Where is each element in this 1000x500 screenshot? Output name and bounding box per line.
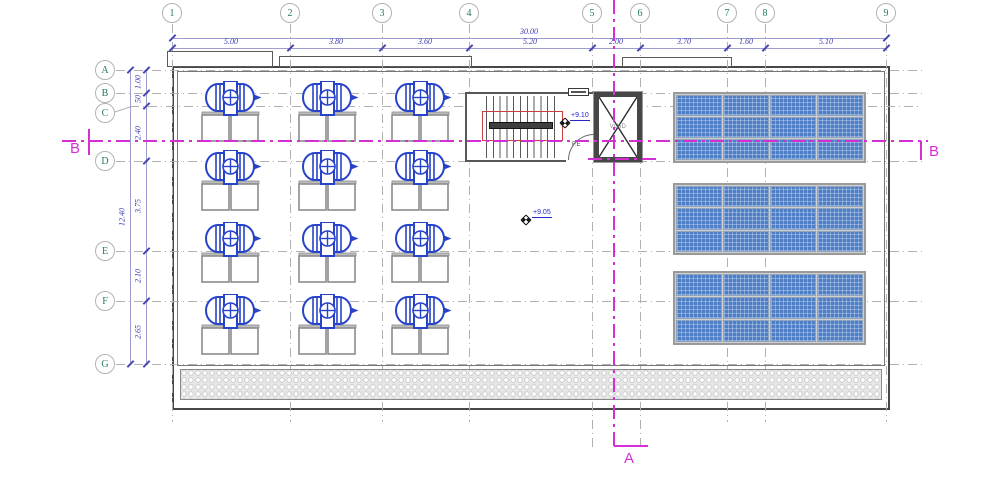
grid-bubble-row-d: D: [95, 151, 115, 171]
section-label-a: A: [624, 450, 634, 467]
solar-panel-cell: [817, 117, 863, 138]
grid-bubble-col-7: 7: [717, 3, 737, 23]
grid-bubble-row-f: F: [95, 291, 115, 311]
solar-panel-cell: [676, 208, 722, 229]
level-annotation-roof: +9.05: [532, 209, 552, 218]
solar-panel-cell: [770, 208, 816, 229]
water-tank-unit: [389, 150, 453, 212]
solar-panel-cell: [676, 320, 722, 342]
solar-panel-cell: [770, 186, 816, 207]
grid-bubble-row-b: B: [95, 83, 115, 103]
solar-array: [673, 183, 866, 255]
section-line-b-end-left: [88, 129, 90, 155]
grid-bubble-col-2: 2: [280, 3, 300, 23]
solar-panel-cell: [723, 231, 769, 252]
grid-line-horizontal-g: [116, 364, 922, 365]
solar-panel-cell: [676, 95, 722, 116]
dimension-value: 5.10: [819, 37, 833, 46]
grid-bubble-col-8: 8: [755, 3, 775, 23]
dimension-value: 5.20: [523, 37, 537, 46]
solar-panel-cell: [723, 320, 769, 342]
solar-panel-cell: [817, 320, 863, 342]
water-tank-unit: [199, 150, 263, 212]
parapet-tab: [622, 57, 732, 67]
grid-bubble-row-g: G: [95, 354, 115, 374]
solar-panel-cell: [723, 139, 769, 160]
section-line-a-elbow: [614, 445, 648, 447]
solar-panel-cell: [770, 139, 816, 160]
roof-hatch: [568, 88, 589, 96]
solar-panel-cell: [817, 139, 863, 160]
dimension-value: 3.80: [329, 37, 343, 46]
grid-bubble-col-9: 9: [876, 3, 896, 23]
level-annotation-stair: +9.10: [570, 112, 590, 121]
dimension-line-v-total: 12.40: [130, 70, 131, 364]
dimension-value: 50: [134, 95, 143, 103]
solar-panel-cell: [676, 231, 722, 252]
parapet-tab: [167, 51, 273, 67]
solar-panel-cell: [770, 117, 816, 138]
solar-panel-cell: [676, 117, 722, 138]
grid-bubble-row-e: E: [95, 241, 115, 261]
water-tank-unit: [389, 222, 453, 284]
dimension-value: 30.00: [520, 27, 538, 36]
stair-handrail: [489, 122, 553, 129]
dimension-value: 2.10: [134, 269, 143, 283]
dimension-line-v-segments: 1.00 50 2.40 3.75 2.10 2.65: [146, 70, 147, 364]
solar-panel-cell: [770, 95, 816, 116]
dimension-value: 12.40: [118, 208, 127, 226]
solar-panel-cell: [770, 320, 816, 342]
water-tank-unit: [389, 294, 453, 356]
section-line-b-end-right: [920, 141, 922, 160]
dimension-value: 3.70: [677, 37, 691, 46]
water-tank-unit: [296, 81, 360, 143]
grid-bubble-col-5: 5: [582, 3, 602, 23]
parapet-tab: [279, 56, 472, 67]
solar-panel-cell: [817, 186, 863, 207]
solar-panel-cell: [770, 231, 816, 252]
grid-line-vertical-3: [382, 24, 383, 422]
solar-panel-cell: [817, 208, 863, 229]
solar-panel-cell: [770, 274, 816, 296]
solar-panel-cell: [817, 231, 863, 252]
grid-bubble-row-a: A: [95, 60, 115, 80]
water-tank-unit: [296, 150, 360, 212]
section-label-b-right: B: [929, 143, 939, 160]
solar-panel-cell: [676, 186, 722, 207]
solar-panel-cell: [770, 297, 816, 319]
grid-bubble-col-4: 4: [459, 3, 479, 23]
dimension-value: 2.40: [134, 126, 143, 140]
water-tank-unit: [199, 222, 263, 284]
grid-line-vertical-1: [172, 24, 173, 422]
solar-panel-cell: [817, 274, 863, 296]
grid-bubble-col-1: 1: [162, 3, 182, 23]
solar-panel-cell: [817, 95, 863, 116]
grid-line-vertical-4: [469, 24, 470, 422]
section-label-b-left: B: [70, 140, 80, 157]
solar-panel-cell: [723, 274, 769, 296]
grid-line-horizontal-a: [116, 70, 922, 71]
grid-line-vertical-2: [290, 24, 291, 422]
dimension-line-h-segments: 5.00 3.80 3.60 5.20 2.00 3.70 1.60 5.10: [172, 48, 886, 49]
section-line-b: [62, 140, 928, 142]
dimension-value: 2.65: [134, 325, 143, 339]
solar-panel-cell: [723, 186, 769, 207]
elevator-shaft: VOID: [594, 92, 642, 162]
section-line-a: [613, 0, 615, 446]
grid-bubble-row-c: C: [95, 103, 115, 123]
solar-panel-cell: [817, 297, 863, 319]
solar-panel-cell: [676, 274, 722, 296]
dimension-value: 5.00: [224, 37, 238, 46]
solar-array: [673, 271, 866, 345]
water-tank-unit: [199, 81, 263, 143]
solar-array: [673, 92, 866, 163]
dimension-value: 1.60: [739, 37, 753, 46]
solar-panel-cell: [723, 208, 769, 229]
grid-c-leader-line: [114, 106, 130, 112]
gravel-strip: [180, 369, 882, 400]
section-line-a-cross: [588, 158, 660, 160]
dimension-value: 1.00: [134, 75, 143, 89]
solar-panel-cell: [723, 95, 769, 116]
grid-line-vertical-9: [886, 24, 887, 422]
solar-panel-cell: [676, 297, 722, 319]
dimension-value: 3.60: [418, 37, 432, 46]
roof-plan-drawing: F.E VOID 1 2 3 4 5 6 7 8 9 A B C D E F G: [0, 0, 1000, 500]
dimension-value: 2.00: [609, 37, 623, 46]
water-tank-unit: [199, 294, 263, 356]
grid-bubble-col-3: 3: [372, 3, 392, 23]
water-tank-unit: [389, 81, 453, 143]
door-label: F.E: [572, 142, 581, 148]
solar-panel-cell: [676, 139, 722, 160]
solar-panel-cell: [723, 297, 769, 319]
grid-bubble-col-6: 6: [630, 3, 650, 23]
dimension-value: 3.75: [134, 199, 143, 213]
water-tank-unit: [296, 222, 360, 284]
water-tank-unit: [296, 294, 360, 356]
solar-panel-cell: [723, 117, 769, 138]
